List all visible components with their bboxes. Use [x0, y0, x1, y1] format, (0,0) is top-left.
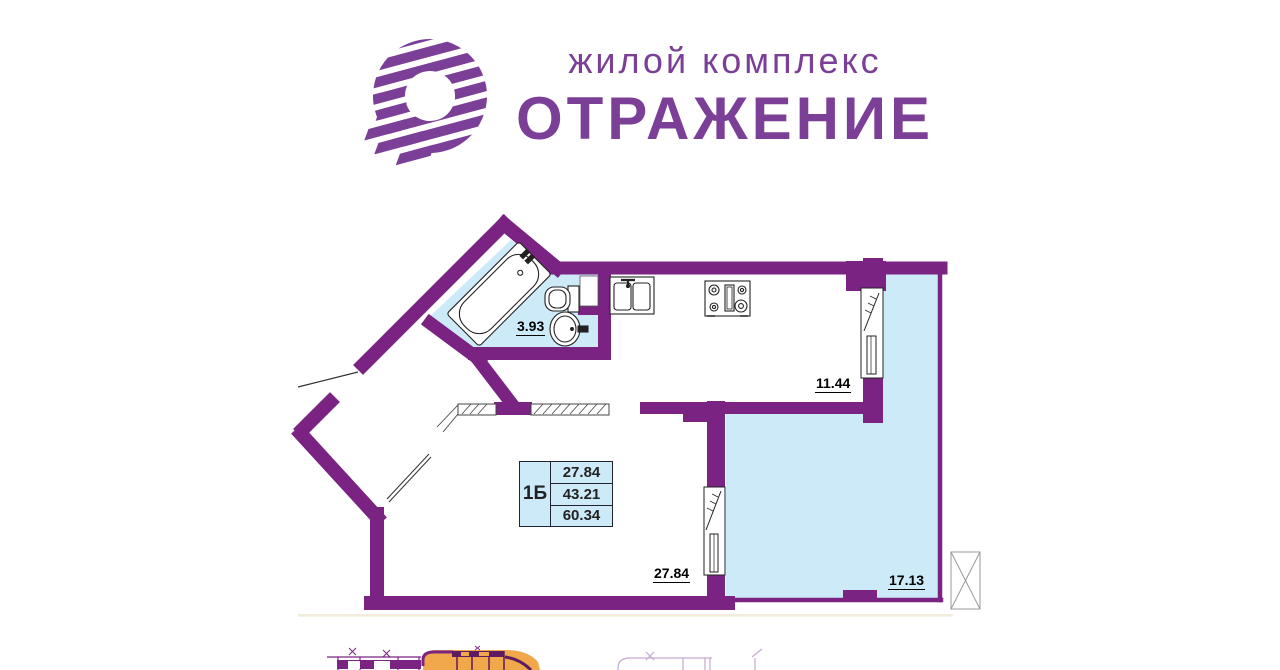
separator-line	[298, 614, 953, 617]
living-balcony-window	[704, 487, 725, 575]
stove	[705, 281, 750, 316]
thumbnail-plan-right	[618, 649, 762, 670]
thumbnail-plan-highlighted	[423, 646, 540, 670]
wall-bathroom-right	[598, 268, 611, 360]
bathroom-area-label: 3.93	[516, 319, 545, 336]
kitchen-balcony-window	[861, 288, 883, 378]
unit-type-cell: 1Б	[520, 462, 551, 526]
wall-bathroom-niche	[578, 306, 598, 315]
area-value-cell: 60.34	[551, 505, 612, 526]
area-value-cell: 43.21	[551, 483, 612, 504]
entry-door-leaf	[298, 372, 358, 387]
doors	[298, 372, 431, 502]
kitchen-area-label: 11.44	[815, 376, 851, 393]
logo-title: ОТРАЖЕНИЕ	[506, 84, 944, 153]
room-door-leaf	[387, 454, 431, 502]
balcony-floor	[726, 266, 939, 599]
area-value-cell: 27.84	[551, 462, 612, 483]
kitchen-sink	[610, 277, 654, 314]
floorplan-page: жилой комплекс ОТРАЖЕНИЕ 3.93 11.44 27.8…	[0, 0, 1280, 670]
wall-balcony-notch	[843, 590, 877, 600]
partition-end-cut	[437, 405, 458, 432]
wall-bathroom-bottom	[468, 347, 611, 360]
logo-icon	[336, 13, 522, 172]
wall-entry-jamb	[303, 402, 330, 429]
logo-subtitle: жилой комплекс	[530, 40, 920, 82]
thumbnail-plan-left	[327, 648, 421, 670]
wall-sw-diagonal	[301, 434, 377, 517]
wall-bathroom-spur	[476, 357, 512, 404]
wall-kitchen-bottom	[640, 402, 883, 414]
vent-shaft	[580, 276, 598, 306]
wall-partition-chunk	[494, 402, 532, 415]
living-room-area-label: 27.84	[653, 566, 690, 583]
balcony-area-label: 17.13	[888, 573, 925, 590]
toilet	[545, 286, 579, 312]
apartment-info-table: 1Б 27.84 43.21 60.34	[519, 461, 613, 527]
shaft-x-box	[951, 552, 980, 609]
